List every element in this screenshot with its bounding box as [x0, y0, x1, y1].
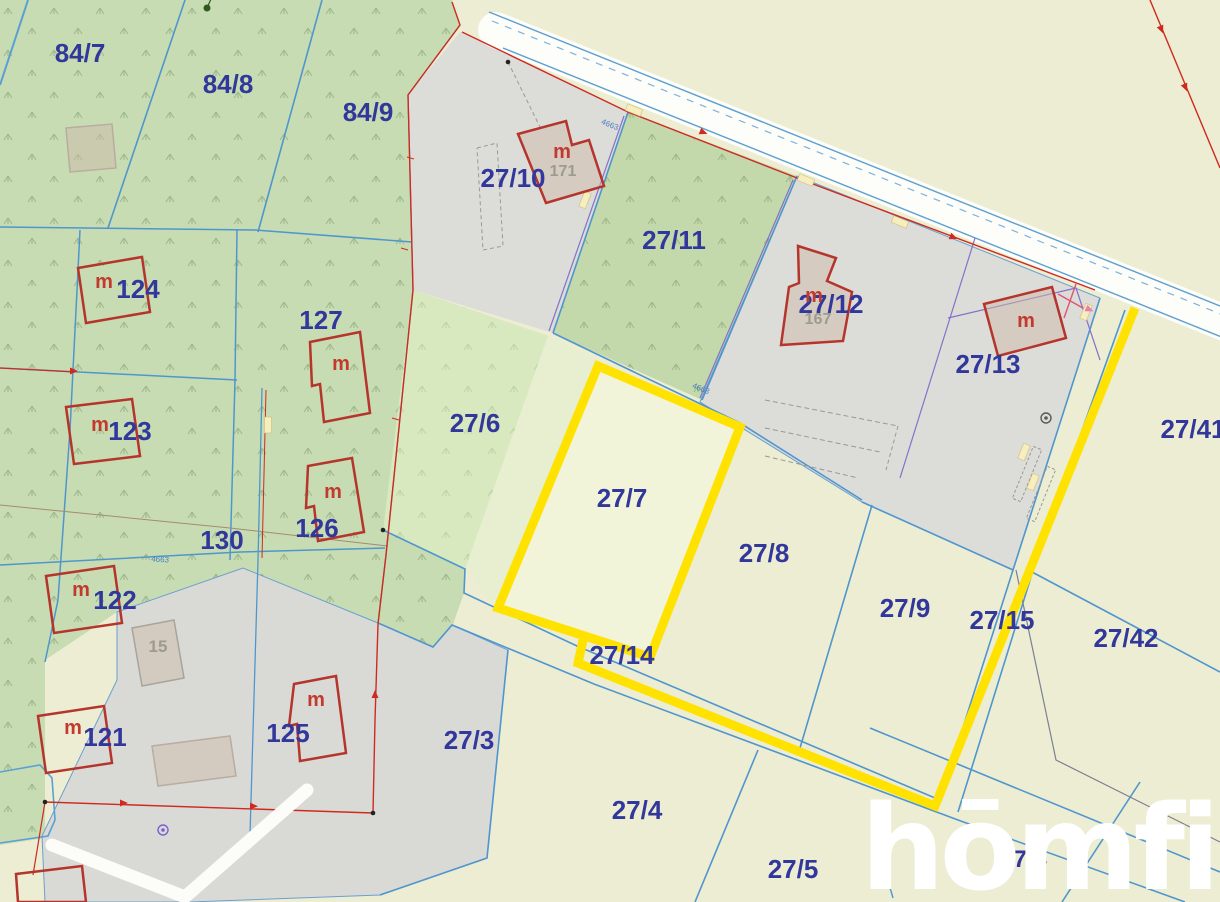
- parcel-label-m: m: [307, 689, 325, 711]
- parcel-label-27-15: 27/15: [969, 605, 1034, 635]
- bnd-41-42: [1032, 572, 1220, 672]
- parcel-label-m: m: [64, 717, 82, 739]
- parcel-label-27-5: 27/5: [768, 854, 819, 884]
- parcel-label-27-6: 27/6: [450, 408, 501, 438]
- parcel-label-4663: 4663: [151, 554, 170, 564]
- survey-arrow: [1181, 83, 1191, 93]
- parcel-label-167: 167: [805, 311, 832, 328]
- logo-layer: hōmfi: [861, 779, 1216, 902]
- parcel-label-84-7: 84/7: [55, 38, 106, 68]
- parcel-label-m: m: [332, 353, 350, 375]
- bnd-4-5: [695, 750, 758, 902]
- survey-dot: [381, 528, 386, 533]
- parcel-label-130: 130: [200, 525, 243, 555]
- parcel-label-123: 123: [108, 416, 151, 446]
- bnd-27-8-9: [800, 505, 872, 748]
- parcel-label-27-4: 27/4: [612, 795, 663, 825]
- homfi-logo: hōmfi: [861, 779, 1216, 902]
- survey-dot: [506, 60, 511, 65]
- map-canvas: 84/784/884/927/1027/1127/1227/1327/4127/…: [0, 0, 1220, 902]
- parcel-label-124: 124: [116, 274, 160, 304]
- parcel-label-27-41: 27/41: [1160, 414, 1220, 444]
- building-84-7: [66, 124, 116, 172]
- parcel-label-15: 15: [149, 637, 168, 656]
- parcel-label-126: 126: [295, 513, 338, 543]
- parcel-label-m: m: [95, 271, 113, 293]
- parcel-label-m: m: [72, 579, 90, 601]
- parcel-label-84-8: 84/8: [203, 69, 254, 99]
- parcel-label-171: 171: [550, 163, 577, 180]
- parcel-label-m: m: [805, 285, 823, 307]
- parcel-label-27-11: 27/11: [642, 225, 706, 255]
- parcel-label-127: 127: [299, 305, 342, 335]
- parcel-label-m: m: [91, 414, 109, 436]
- parcel-label-27-8: 27/8: [739, 538, 790, 568]
- survey-dot: [43, 800, 48, 805]
- tiny-label-box: [265, 417, 272, 433]
- parcel-label-27-9: 27/9: [880, 593, 931, 623]
- well-symbol-center: [1044, 416, 1048, 420]
- parcel-label-121: 121: [83, 722, 126, 752]
- parcel-label-27-7: 27/7: [597, 483, 648, 513]
- manhole-symbol-center: [161, 828, 165, 832]
- survey-dot: [371, 811, 376, 816]
- parcel-label-m: m: [553, 141, 571, 163]
- parcel-label-122: 122: [93, 585, 136, 615]
- parcel-label-27-14: 27/14: [589, 640, 655, 670]
- survey-arrow: [1157, 25, 1167, 35]
- parcel-label-84-9: 84/9: [343, 97, 394, 127]
- parcel-label-27-10: 27/10: [480, 163, 545, 193]
- parcel-label-27-13: 27/13: [955, 349, 1020, 379]
- cadastral-map: 84/784/884/927/1027/1127/1227/1327/4127/…: [0, 0, 1220, 902]
- parcel-label-27-42: 27/42: [1093, 623, 1158, 653]
- parcel-label-125: 125: [266, 718, 309, 748]
- parcel-label-27-3: 27/3: [444, 725, 495, 755]
- parcel-label-m: m: [1017, 310, 1035, 332]
- parcel-label-m: m: [324, 481, 342, 503]
